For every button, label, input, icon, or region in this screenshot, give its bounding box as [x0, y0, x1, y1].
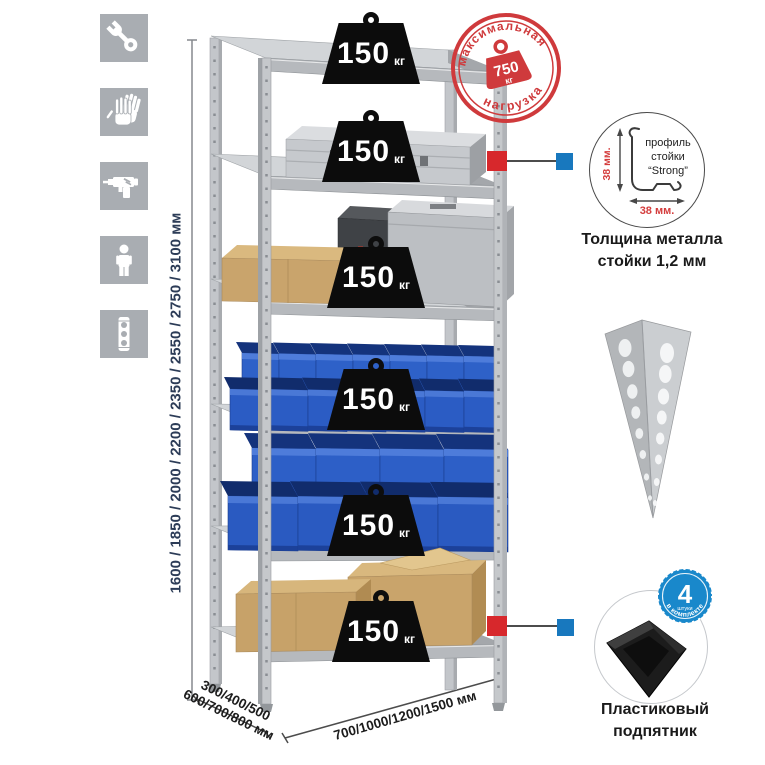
load-badge-shelf3: 150кг [327, 236, 425, 308]
foot-caption: Пластиковый подпятник [560, 699, 750, 743]
load-badge-shelf1: 150кг [322, 12, 420, 84]
profile-callout-line [500, 160, 560, 162]
corner-post-illustration [595, 308, 705, 533]
load-badge-shelf4: 150кг [327, 358, 425, 430]
profile-caption: Толщина металла стойки 1,2 мм [557, 229, 747, 273]
post-profile-detail: 38 мм. 38 мм. профиль стойки “Strong” [589, 112, 705, 228]
svg-text:стойки: стойки [651, 151, 685, 163]
profile-callout-marker-blue [556, 153, 573, 170]
foot-callout-marker-red [487, 616, 507, 636]
dimension-lines [187, 40, 197, 700]
included-count-badge: 4 штуки в комплекте [655, 566, 715, 626]
profile-label: профиль стойки “Strong” [645, 137, 691, 177]
load-badge-shelf2: 150кг [322, 110, 420, 182]
svg-text:38 мм.: 38 мм. [601, 147, 613, 180]
profile-callout-marker-red [487, 151, 507, 171]
svg-text:38 мм.: 38 мм. [640, 205, 675, 217]
product-infographic: 150кг 150кг 150кг 150кг 150кг 150кг макс… [0, 0, 765, 765]
load-badge-shelf6: 150кг [332, 590, 430, 662]
stamp-kettlebell-icon: 750 кг [477, 36, 533, 91]
plastic-foot-drawing [607, 621, 686, 697]
height-dimensions-label: 1600 / 1850 / 2000 / 2200 / 2350 / 2550 … [168, 213, 185, 594]
svg-text:“Strong”: “Strong” [648, 165, 688, 177]
foot-callout-marker-blue [557, 619, 574, 636]
load-badge-shelf5: 150кг [327, 484, 425, 556]
svg-text:профиль: профиль [645, 137, 691, 149]
foot-callout-line [500, 625, 560, 627]
svg-text:4: 4 [678, 579, 693, 609]
